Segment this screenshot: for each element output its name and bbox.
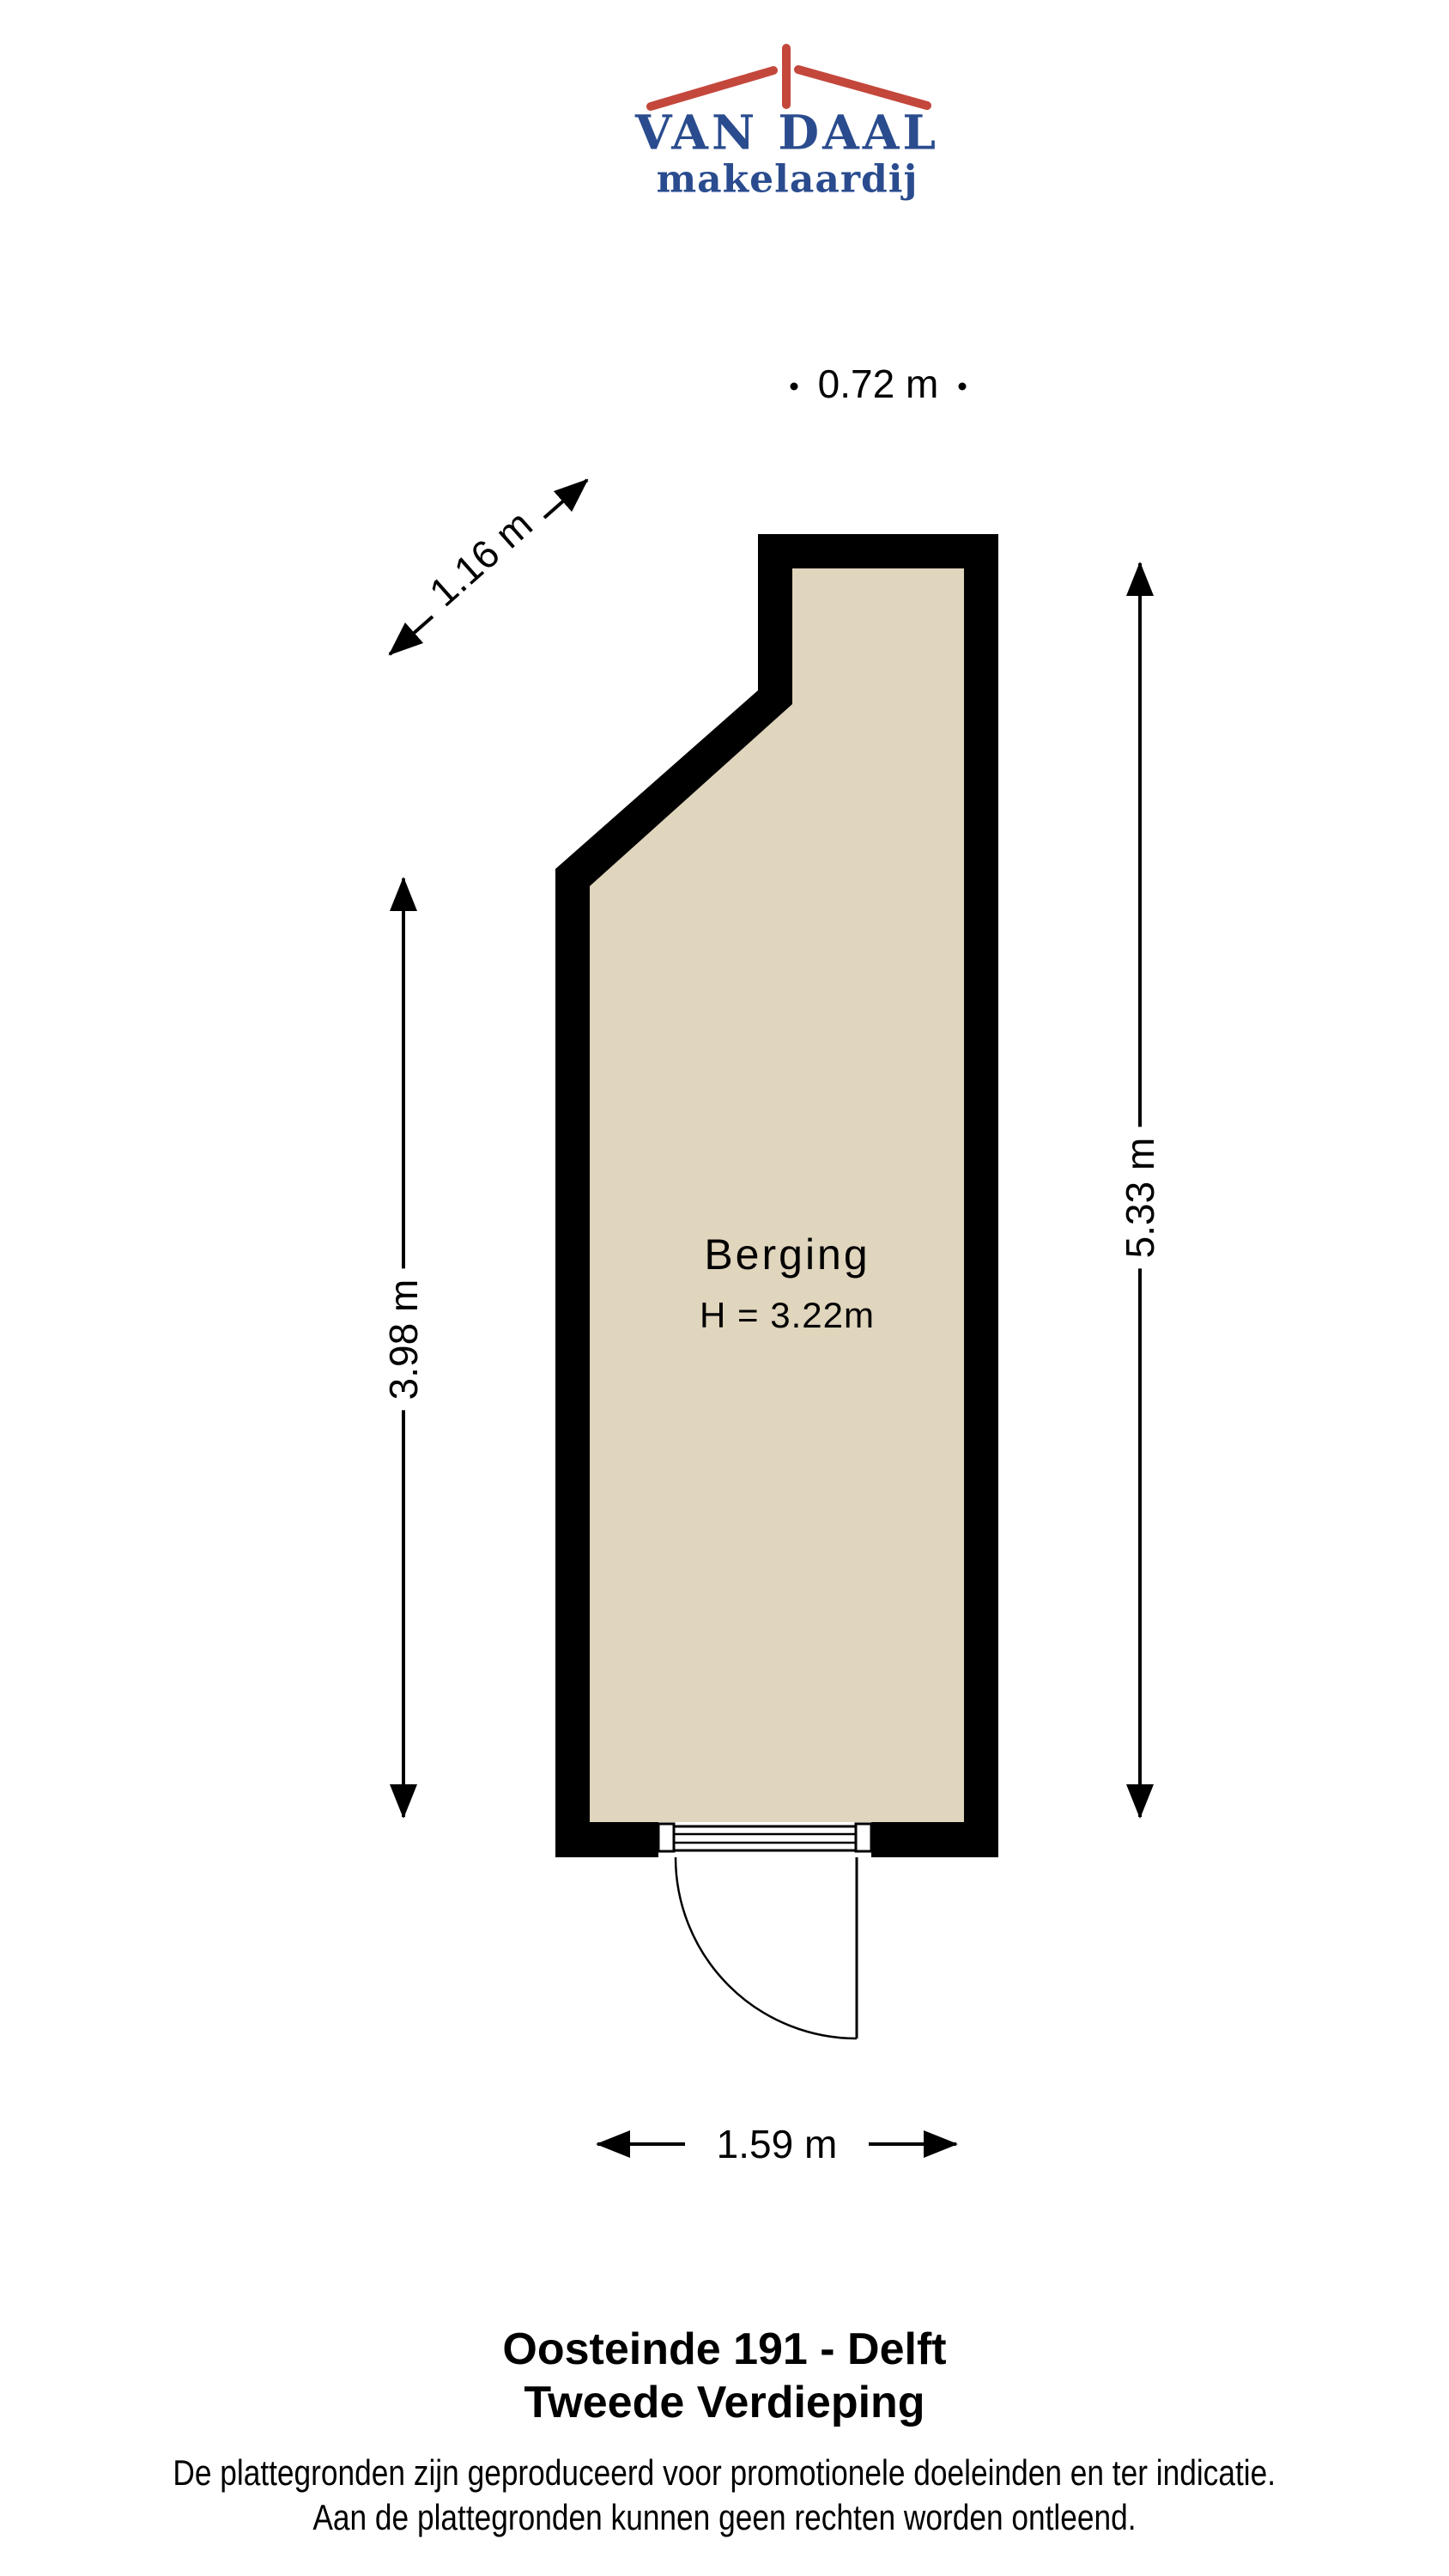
dimension-label-top: 0.72 m [808, 361, 949, 407]
room-label: Berging [704, 1230, 870, 1279]
floorplan-page: VAN DAAL makelaardij [0, 0, 1449, 2576]
plan-subtitle: Tweede Verdieping [0, 2377, 1449, 2428]
door-swing-arc [676, 1857, 857, 2038]
plan-title: Oosteinde 191 - Delft [0, 2324, 1449, 2375]
dimension-label-left: 3.98 m [380, 1269, 427, 1411]
disclaimer-line-2: Aan de plattegronden kunnen geen rechten… [0, 2497, 1449, 2538]
disclaimer-text-1: De plattegronden zijn geproduceerd voor … [173, 2452, 1276, 2494]
door-threshold [674, 1826, 856, 1850]
room-floor [590, 568, 964, 1822]
floorplan-drawing [0, 0, 1449, 2576]
disclaimer-line-1: De plattegronden zijn geproduceerd voor … [0, 2452, 1449, 2494]
dimension-label-bottom: 1.59 m [706, 2121, 848, 2167]
disclaimer-text-2: Aan de plattegronden kunnen geen rechten… [312, 2497, 1136, 2538]
room-height-label: H = 3.22m [700, 1295, 875, 1336]
dimension-label-right: 5.33 m [1117, 1127, 1163, 1269]
